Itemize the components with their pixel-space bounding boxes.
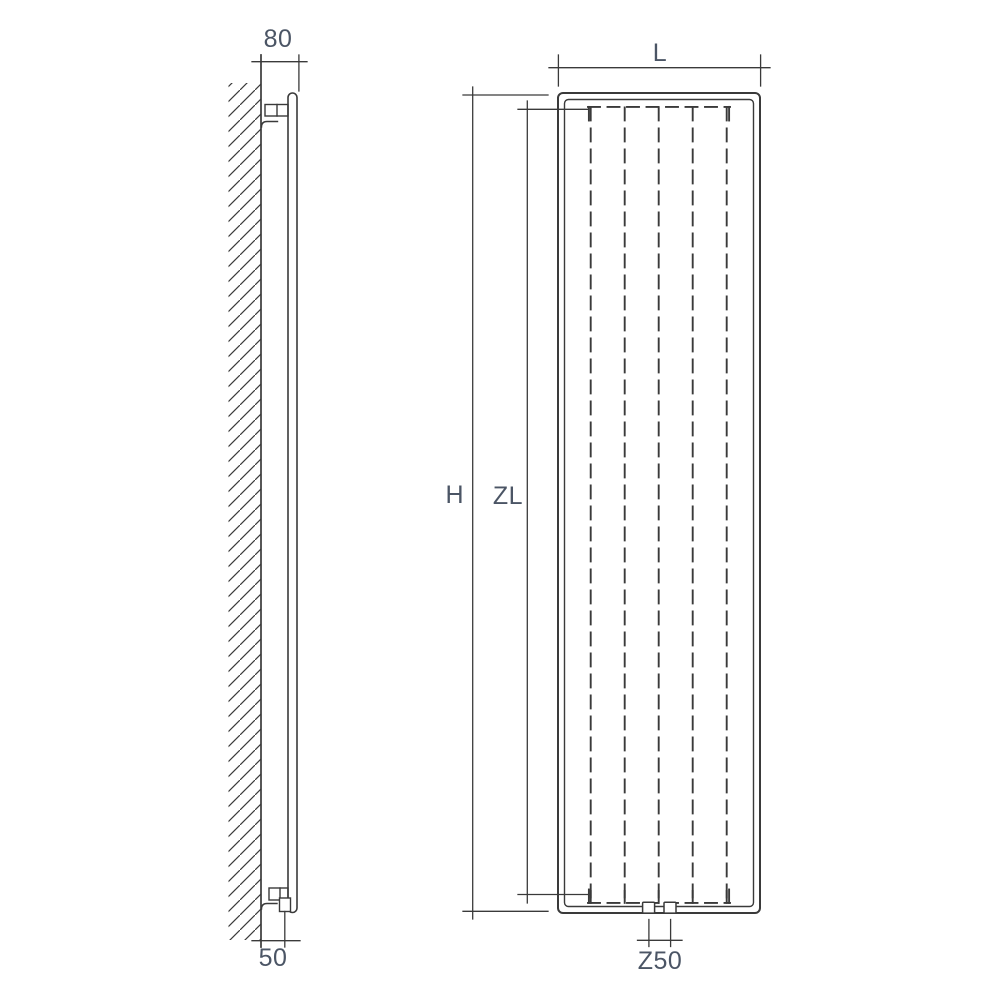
technical-drawing: 80 50 L H ZL Z50 xyxy=(0,0,1000,1000)
connection-left xyxy=(643,902,655,913)
dim-label-H: H xyxy=(414,482,464,508)
side-view xyxy=(229,55,308,947)
radiator-side-panel xyxy=(288,93,297,913)
dim-Z50 xyxy=(638,920,683,947)
dim-label-Z50: Z50 xyxy=(622,948,698,974)
connection-right xyxy=(664,902,676,913)
bottom-wall-bracket xyxy=(262,888,291,912)
dim-label-L: L xyxy=(622,40,698,66)
dim-label-50: 50 xyxy=(235,945,311,971)
bracket-foot xyxy=(280,898,291,912)
top-wall-bracket xyxy=(262,105,289,128)
dim-label-ZL: ZL xyxy=(464,483,523,509)
dim-label-80: 80 xyxy=(240,26,316,52)
wall-hatching xyxy=(229,83,262,940)
